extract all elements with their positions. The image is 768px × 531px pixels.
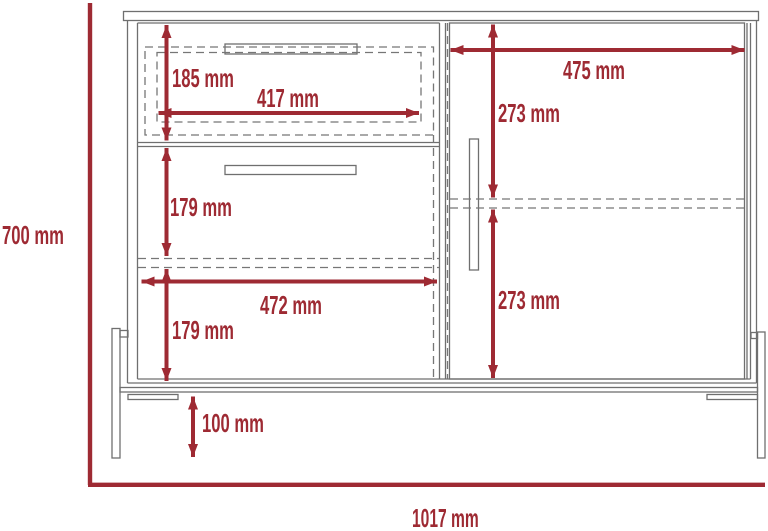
left-leg [112, 329, 120, 459]
right-leg [758, 332, 766, 458]
top-panel [124, 12, 759, 21]
door-width-label: 475 mm [563, 57, 625, 83]
door-handle [470, 139, 479, 270]
middle-drawer-height-label: 179 mm [170, 194, 232, 220]
door-upper-half-height-label: 273 mm [498, 100, 560, 126]
door-lower-half-height-label: 273 mm [498, 287, 560, 313]
dimension-diagram: 700 mm 1017 mm 185 mm 417 mm 179 mm 472 … [0, 0, 768, 531]
bottom-compartment-height-label: 179 mm [172, 317, 234, 343]
bottom-compartment-width-label: 472 mm [260, 292, 322, 318]
overall-height-label: 700 mm [2, 222, 64, 248]
overall-width-label: 1017 mm [412, 505, 479, 531]
cabinet-line-art [0, 0, 768, 531]
left-rail-bracket [128, 395, 178, 400]
top-drawer-height-label: 185 mm [172, 65, 234, 91]
left-leg-bracket-notch [120, 331, 128, 338]
leg-height-label: 100 mm [202, 410, 264, 436]
right-rail-bracket [707, 395, 758, 400]
leg-rail [120, 388, 758, 393]
drawer-2-handle [225, 166, 356, 175]
top-drawer-width-label: 417 mm [257, 85, 319, 111]
